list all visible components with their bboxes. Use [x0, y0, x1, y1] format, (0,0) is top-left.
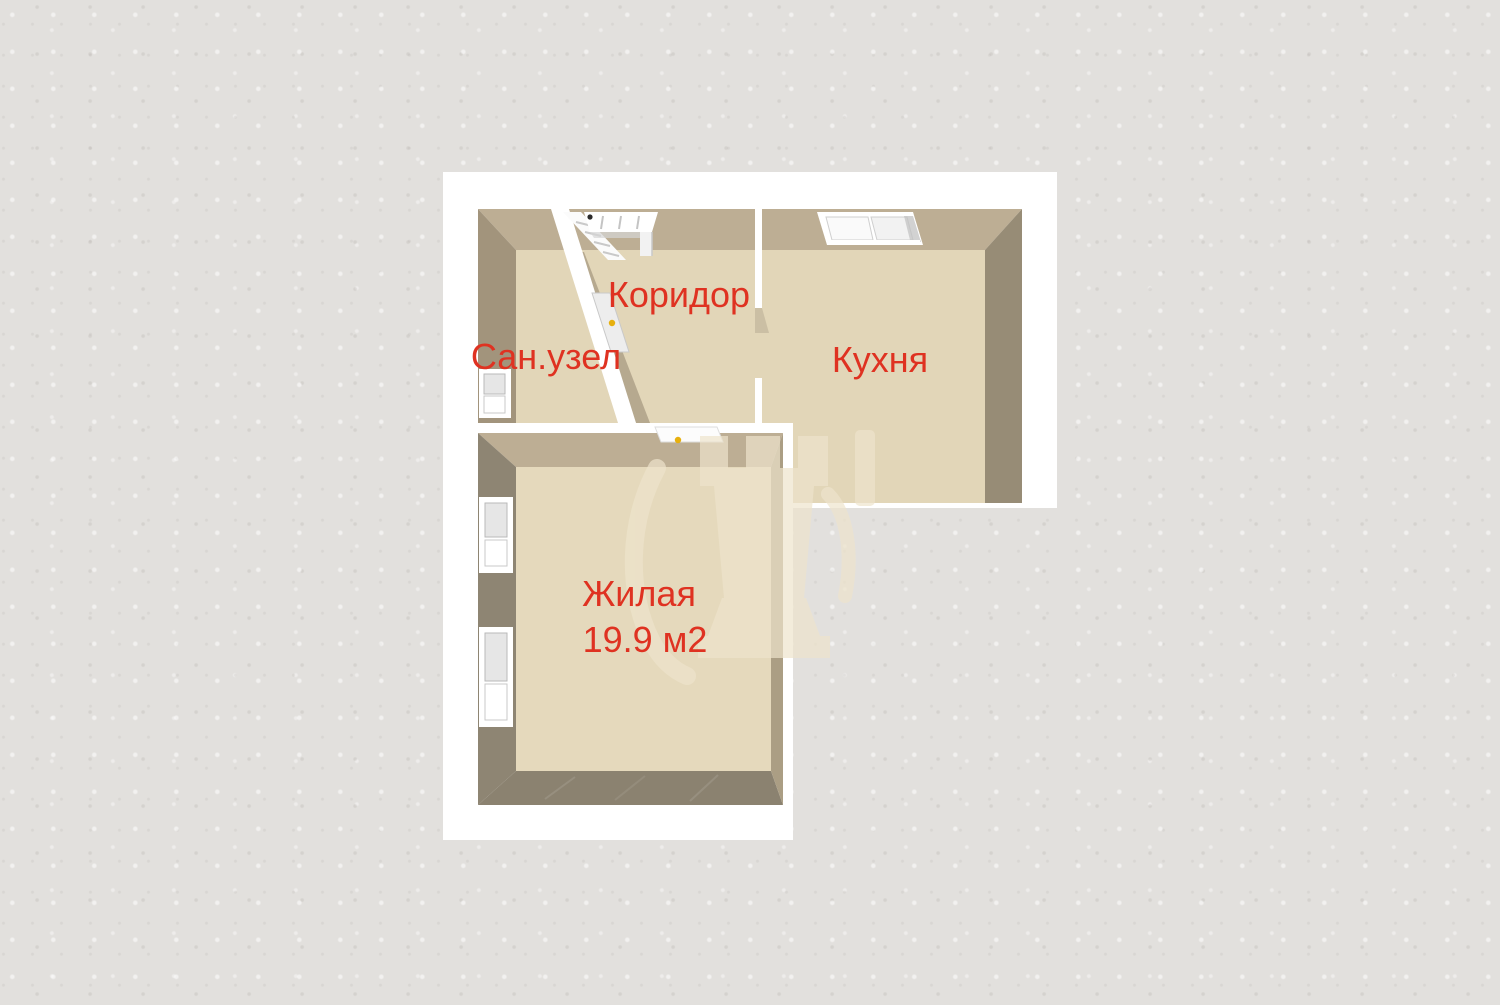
living-door-handle-icon: [675, 437, 681, 443]
wall-kitchen-right: [985, 209, 1022, 503]
wall-living-left: [478, 433, 516, 805]
wall-living-top: [478, 433, 783, 467]
bathroom-door-handle-icon: [609, 320, 615, 326]
door-opening-kitchen: [755, 333, 762, 378]
living-window-bottom: [479, 627, 513, 727]
wall-corridor-kitchen-upper: [755, 209, 762, 308]
kitchen-window: [817, 212, 923, 245]
room-label-bathroom: Сан.узел: [471, 336, 621, 377]
room-area-living: 19.9 м2: [583, 619, 708, 660]
floor-plan-image: Сан.узел Коридор Кухня Жилая 19.9 м2: [0, 0, 1500, 1005]
room-label-corridor: Коридор: [608, 274, 750, 315]
floor-plan-canvas: Сан.узел Коридор Кухня Жилая 19.9 м2: [0, 0, 1500, 1005]
room-label-living: Жилая: [582, 573, 696, 614]
room-label-kitchen: Кухня: [832, 339, 928, 380]
wall-corridor-kitchen-lower: [755, 378, 762, 423]
living-window-top: [479, 497, 513, 573]
floor-kitchen-upper: [762, 250, 985, 423]
